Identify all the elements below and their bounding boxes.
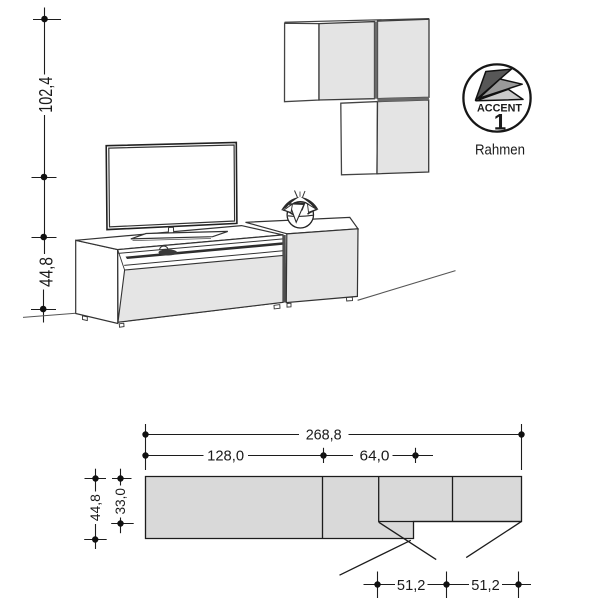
svg-text:128,0: 128,0 (207, 448, 244, 465)
svg-text:51,2: 51,2 (471, 578, 500, 594)
svg-text:44,8: 44,8 (35, 257, 56, 287)
svg-text:102,4: 102,4 (35, 77, 56, 113)
svg-text:64,0: 64,0 (360, 448, 390, 465)
svg-text:268,8: 268,8 (306, 427, 342, 444)
svg-text:44,8: 44,8 (88, 494, 103, 521)
svg-text:1: 1 (494, 110, 506, 135)
svg-text:Rahmen: Rahmen (475, 142, 525, 159)
svg-text:33,0: 33,0 (113, 488, 128, 515)
svg-text:51,2: 51,2 (397, 578, 426, 594)
